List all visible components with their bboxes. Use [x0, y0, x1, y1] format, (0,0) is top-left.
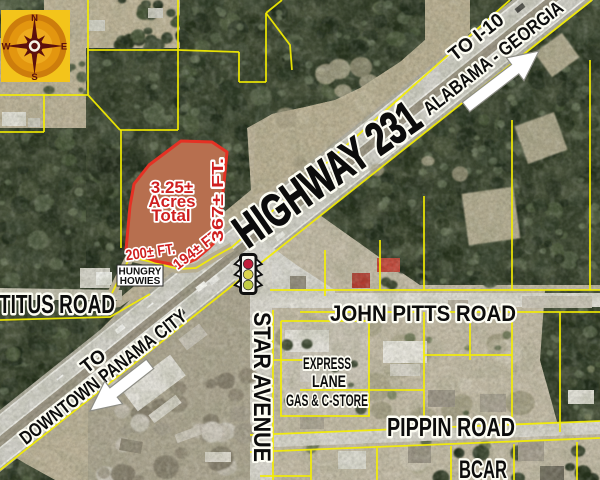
- svg-text:HOWIES: HOWIES: [120, 276, 161, 287]
- svg-text:TITUS ROAD: TITUS ROAD: [0, 289, 115, 319]
- svg-text:STAR AVENUE: STAR AVENUE: [248, 312, 275, 462]
- svg-text:LANE: LANE: [312, 372, 346, 391]
- svg-text:Total: Total: [151, 206, 190, 225]
- svg-text:EXPRESS: EXPRESS: [303, 354, 351, 373]
- svg-text:BCAR: BCAR: [459, 456, 507, 480]
- svg-text:W: W: [2, 42, 11, 53]
- svg-text:PIPPIN ROAD: PIPPIN ROAD: [387, 412, 515, 442]
- svg-text:E: E: [61, 42, 67, 53]
- svg-text:GAS & C-STORE: GAS & C-STORE: [286, 391, 368, 410]
- svg-text:S: S: [31, 72, 37, 83]
- svg-text:367± FT.: 367± FT.: [210, 158, 227, 242]
- svg-text:JOHN PITTS ROAD: JOHN PITTS ROAD: [330, 301, 516, 326]
- svg-text:N: N: [31, 13, 38, 24]
